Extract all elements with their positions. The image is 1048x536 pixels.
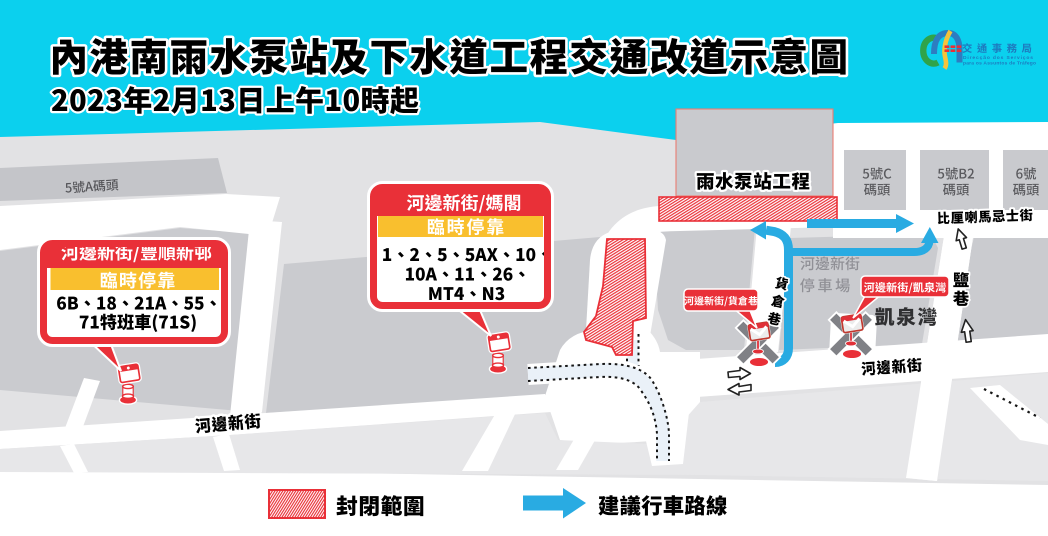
svg-text:Direcção dos Serviços: Direcção dos Serviços [963,55,1033,61]
svg-text:para os Assuntos de Tráfego: para os Assuntos de Tráfego [963,61,1036,67]
